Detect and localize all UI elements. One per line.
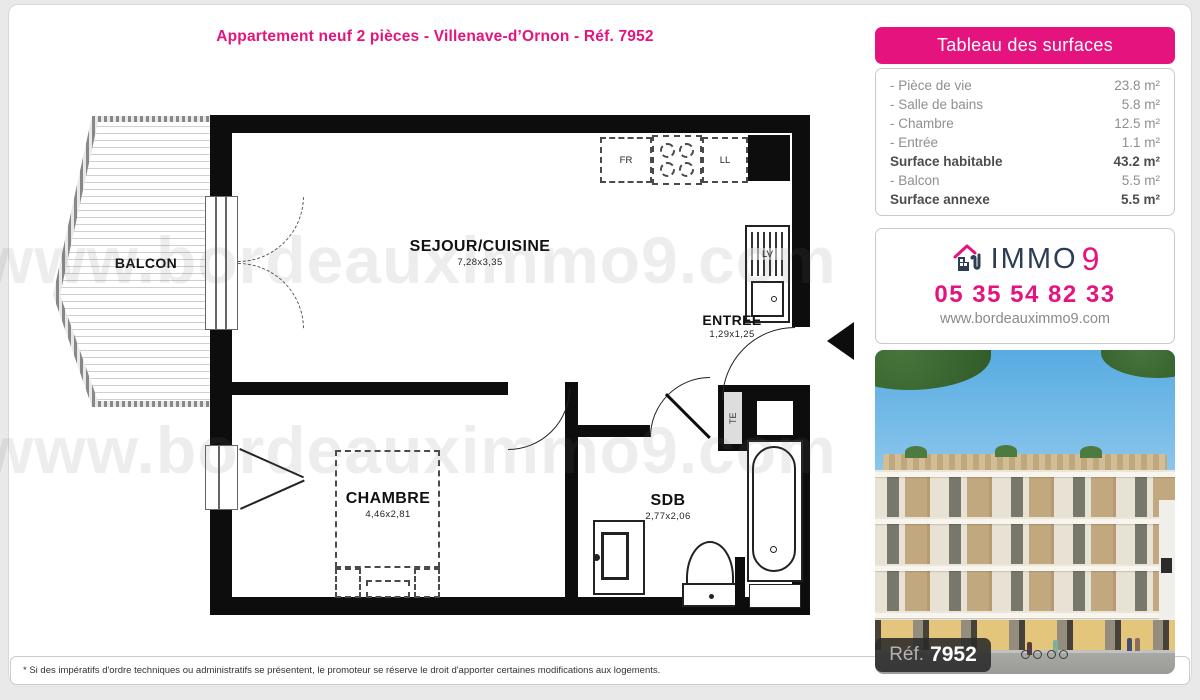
table-row: - Pièce de vie23.8 m² [890, 76, 1160, 95]
wall-top [215, 115, 810, 133]
living-label: SEJOUR/CUISINE 7,28x3,35 [330, 238, 630, 268]
table-row: - Chambre12.5 m² [890, 114, 1160, 133]
bedroom-window [205, 445, 238, 510]
toilet-base [682, 583, 738, 607]
kitchen-sink-unit: LV [745, 225, 790, 323]
agency-logo: IMMO9 [876, 239, 1174, 279]
entry-label: ENTREE 1,29x1,25 [662, 312, 802, 340]
roof-bush [1080, 446, 1102, 458]
reference-badge: Réf. 7952 [875, 638, 991, 672]
surfaces-table: - Pièce de vie23.8 m² - Salle de bains5.… [875, 68, 1175, 216]
toilet-bowl [686, 541, 734, 587]
bathtub [747, 440, 803, 582]
table-row: - Entrée1.1 m² [890, 133, 1160, 152]
bike-wheel [1047, 650, 1056, 659]
duct-box [750, 394, 800, 442]
nightstand-left [335, 568, 361, 598]
surfaces-panel-header: Tableau des surfaces [875, 27, 1175, 64]
pedestrian [1127, 638, 1132, 651]
bedroom-window-swing-line1 [239, 448, 304, 478]
entrance-arrow-icon [827, 322, 854, 360]
floor-slab [875, 566, 1175, 571]
washing-machine: LL [702, 137, 748, 183]
stove [652, 135, 702, 185]
shop-sign [1161, 558, 1172, 573]
table-row: - Salle de bains5.8 m² [890, 95, 1160, 114]
floor-slab [875, 472, 1175, 477]
bedroom-label: CHAMBRE 4,46x2,81 [288, 490, 488, 520]
bike-wheel [1059, 650, 1068, 659]
floor-slab [875, 519, 1175, 524]
nightstand-right [414, 568, 440, 598]
bath-vanity [593, 520, 645, 595]
balcony-label: BALCON [90, 255, 202, 271]
bath-cabinet [749, 584, 801, 608]
page-title: Appartement neuf 2 pièces - Villenave-d’… [0, 28, 870, 46]
balcony-door-swing-top [238, 196, 304, 262]
balcony-door-swing-bottom [238, 263, 304, 329]
building-floor [875, 571, 1175, 611]
wall-bath-top [578, 425, 650, 437]
bath-label: SDB 2,77x2,06 [608, 492, 728, 522]
wall-bath-stub [735, 557, 745, 615]
wall-left-b [210, 330, 232, 445]
ref-number: 7952 [930, 643, 977, 667]
kitchen-duct [748, 135, 790, 181]
fridge: FR [600, 137, 652, 183]
house-icon [951, 242, 987, 276]
balcony-door [205, 196, 238, 330]
wall-left-a [210, 115, 232, 196]
wall-right-upper [792, 115, 810, 327]
table-row-total-habitable: Surface habitable43.2 m² [890, 152, 1160, 171]
ref-label: Réf. [889, 644, 924, 666]
brand-number: 9 [1082, 241, 1100, 278]
phone-number[interactable]: 05 35 54 82 33 [876, 281, 1174, 309]
floor-slab [875, 613, 1175, 618]
table-row-total-annexe: Surface annexe5.5 m² [890, 190, 1160, 209]
floor-plan: BALCON TE FR [50, 105, 860, 640]
building-floor [875, 524, 1175, 564]
bike-wheel [1033, 650, 1042, 659]
dishwasher: LV [751, 232, 784, 276]
roof-bush [905, 446, 927, 458]
building-floor [875, 477, 1175, 517]
bike-wheel [1021, 650, 1030, 659]
pedestrian [1135, 638, 1140, 651]
brand-text: IMMO [991, 243, 1078, 276]
building-photo: Réf. 7952 [875, 350, 1175, 674]
wall-living-bedroom [232, 382, 508, 395]
bedroom-door-swing [508, 388, 570, 450]
website-link[interactable]: www.bordeauximmo9.com [876, 311, 1174, 327]
agency-contact-card: IMMO9 05 35 54 82 33 www.bordeauximmo9.c… [875, 228, 1175, 344]
bed-foot [366, 580, 410, 598]
roof-bush [995, 445, 1017, 457]
wall-left-c [210, 510, 232, 615]
table-row: - Balcon5.5 m² [890, 171, 1160, 190]
